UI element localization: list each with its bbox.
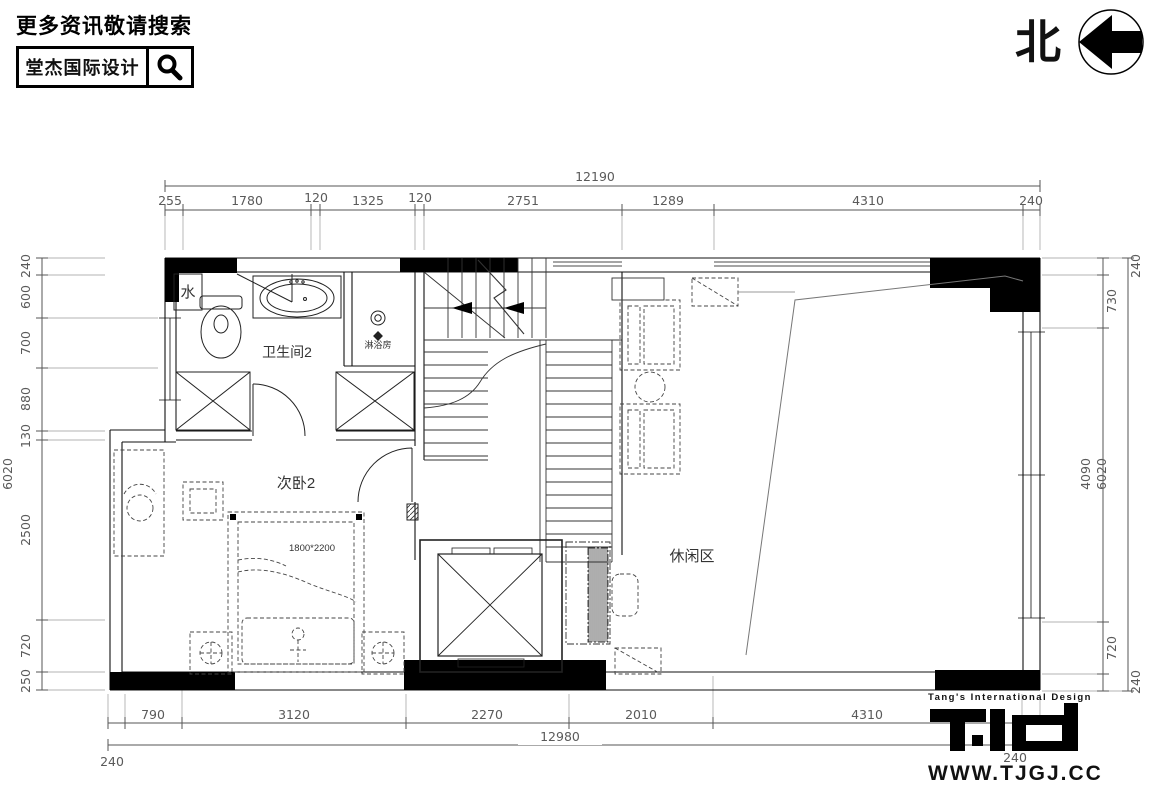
elevator bbox=[420, 540, 562, 672]
dim-top-5: 2751 bbox=[507, 193, 539, 208]
dim-bottom-4: 4310 bbox=[851, 707, 883, 722]
dim-top-0: 255 bbox=[158, 193, 182, 208]
north-label: 北 bbox=[1015, 7, 1061, 77]
bedroom-furniture bbox=[114, 450, 404, 674]
dim-top-3: 1325 bbox=[352, 193, 384, 208]
floor-plan-drawing: 12190 255 1780 120 1325 120 2751 1289 43… bbox=[0, 0, 1158, 800]
stair-direction-arrow bbox=[504, 302, 524, 314]
wardrobes bbox=[176, 372, 414, 430]
armchair bbox=[620, 300, 680, 370]
dim-left-7: 250 bbox=[18, 669, 33, 693]
dim-left-total: 6020 bbox=[0, 458, 15, 490]
leisure-furniture bbox=[612, 278, 738, 674]
dim-bottom-total: 12980 bbox=[540, 729, 580, 744]
footer-tagline: Tang's International Design bbox=[928, 692, 1150, 703]
footer-branding: Tang's International Design WWW.TJGJ.CC bbox=[928, 692, 1150, 786]
toilet bbox=[200, 296, 242, 309]
side-table bbox=[635, 372, 665, 402]
north-arrow-icon bbox=[1075, 6, 1147, 78]
dim-bottom-0: 790 bbox=[141, 707, 165, 722]
brand-search-box: 堂杰国际设计 bbox=[16, 46, 194, 88]
dim-bottom-2: 2270 bbox=[471, 707, 503, 722]
nightstand bbox=[190, 632, 232, 674]
dim-right-outer-bottom: 240 bbox=[1128, 670, 1143, 694]
dim-left-5: 2500 bbox=[18, 514, 33, 546]
wall-piers bbox=[110, 258, 1040, 690]
dim-top-8: 240 bbox=[1019, 193, 1043, 208]
walls bbox=[110, 258, 1045, 690]
nightstand bbox=[362, 632, 404, 674]
dim-right-1: 4090 bbox=[1078, 458, 1093, 490]
dim-right-total: 6020 bbox=[1094, 458, 1109, 490]
search-hint-text: 更多资讯敬请搜索 bbox=[16, 10, 194, 40]
small-table bbox=[183, 482, 223, 520]
slope-line bbox=[738, 276, 1023, 655]
room-labels: 水 卫生间2 淋浴房 次卧2 休闲区 1800*2200 bbox=[180, 284, 714, 565]
dim-left-6: 720 bbox=[18, 634, 33, 658]
dim-bottom-1: 3120 bbox=[278, 707, 310, 722]
bed bbox=[228, 512, 364, 672]
label-water: 水 bbox=[180, 284, 195, 301]
label-bedroom: 次卧2 bbox=[277, 475, 315, 492]
drawing-canvas: 12190 255 1780 120 1325 120 2751 1289 43… bbox=[0, 0, 1158, 800]
dim-left-3: 880 bbox=[18, 387, 33, 411]
bedroom-door bbox=[358, 448, 418, 520]
shower-head bbox=[371, 311, 385, 325]
dim-right-2: 720 bbox=[1104, 636, 1119, 660]
label-leisure: 休闲区 bbox=[669, 548, 714, 565]
dim-top-4: 120 bbox=[408, 190, 432, 205]
closet-door bbox=[253, 384, 305, 436]
dim-right-0: 730 bbox=[1104, 289, 1119, 313]
dim-left-0: 240 bbox=[18, 254, 33, 278]
north-indicator: 北 bbox=[1015, 6, 1147, 78]
bed-corner-marks bbox=[230, 514, 362, 520]
dim-top-total: 12190 bbox=[575, 169, 615, 184]
dim-left-2: 700 bbox=[18, 331, 33, 355]
footer-website: WWW.TJGJ.CC bbox=[928, 762, 1150, 786]
brand-name: 堂杰国际设计 bbox=[19, 49, 146, 85]
dim-left-1: 600 bbox=[18, 285, 33, 309]
search-icon bbox=[149, 49, 191, 85]
tid-logo bbox=[928, 703, 1143, 755]
label-bathroom: 卫生间2 bbox=[262, 344, 312, 360]
dim-top-2: 120 bbox=[304, 190, 328, 205]
label-bed-size: 1800*2200 bbox=[289, 543, 335, 554]
dim-top-1: 1780 bbox=[231, 193, 263, 208]
dim-top-7: 4310 bbox=[852, 193, 884, 208]
cabinet-piano bbox=[566, 542, 610, 644]
armchair bbox=[620, 404, 680, 474]
desk-chair bbox=[127, 495, 153, 521]
dim-right-outer-top: 240 bbox=[1128, 254, 1143, 278]
header-branding: 更多资讯敬请搜索 堂杰国际设计 bbox=[16, 10, 194, 88]
dim-bottom-outer-left: 240 bbox=[100, 754, 124, 769]
dim-bottom-3: 2010 bbox=[625, 707, 657, 722]
dimension-extension-lines bbox=[48, 216, 1122, 717]
stool bbox=[612, 574, 638, 616]
dim-top-6: 1289 bbox=[652, 193, 684, 208]
label-shower: 淋浴房 bbox=[364, 339, 391, 350]
dim-left-4: 130 bbox=[18, 424, 33, 448]
